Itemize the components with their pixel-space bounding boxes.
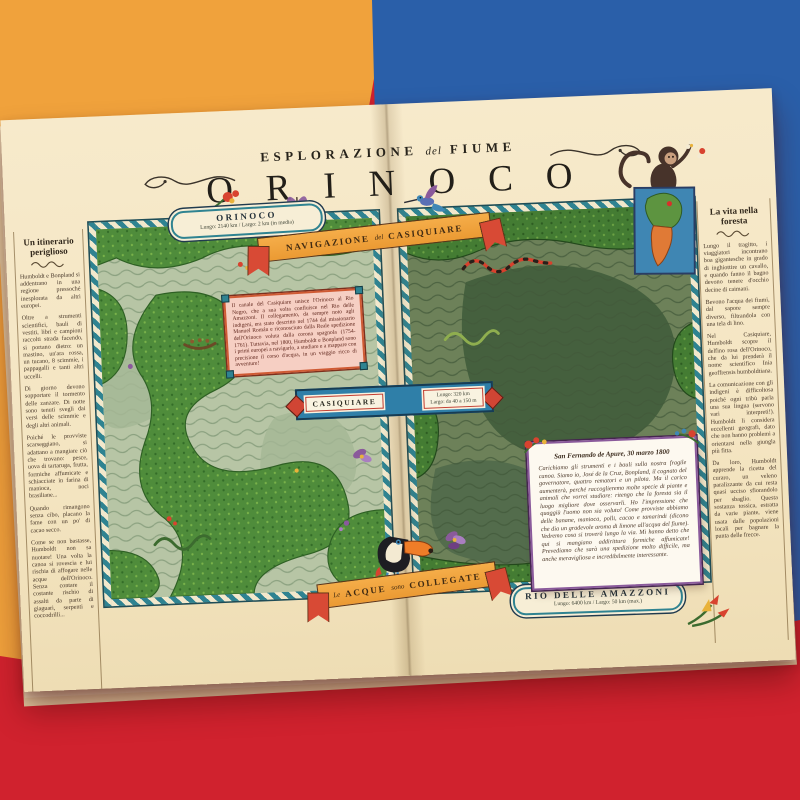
casiquiare-note-box: Il canale del Casiquiare unisce l'Orinoc…	[223, 288, 366, 376]
ribbon-word: CASIQUIARE	[388, 222, 464, 240]
ribbon-word-sono: sono	[391, 582, 405, 592]
ribbon-word-le: Le	[333, 590, 341, 599]
right-column-title: La vita nella foresta	[702, 204, 767, 227]
divider-squiggle-icon	[715, 228, 755, 239]
casiquiare-stat-width: Largo: da 40 a 150 m	[430, 397, 476, 406]
heliconia-flowers-icon	[680, 582, 734, 628]
left-paragraph: Di giorno devono sopportare il tormento …	[25, 384, 87, 430]
right-paragraph: La comunicazione con gli indigeni è diff…	[709, 380, 776, 456]
right-paragraph: Nel Casiquiare, Humboldt scopre il delfi…	[707, 331, 773, 378]
orinoco-location-dot	[667, 201, 672, 206]
right-paragraph: Da loro, Humboldt apprende la ricetta de…	[712, 458, 779, 541]
casiquiare-name: CASIQUIARE	[312, 397, 376, 409]
map-spread: ESPLORAZIONEdelFIUME ORINOCO Un itinerar…	[0, 88, 795, 692]
left-paragraph: Come se non bastasse, Humboldt non sa nu…	[31, 538, 94, 621]
left-paragraph: Oltre a strumenti scientifici, bauli di …	[22, 313, 85, 381]
casiquiare-note-text: Il canale del Casiquiare unisce l'Orinoc…	[232, 296, 358, 369]
ribbon-word: NAVIGAZIONE	[285, 233, 370, 252]
letter-body: Carichiamo gli strumenti e i bauli sulla…	[538, 459, 690, 563]
casiquiare-name-cell: CASIQUIARE	[305, 394, 383, 412]
flower-in-hand-icon	[685, 140, 697, 149]
expedition-letter: San Fernando de Apure, 30 marzo 1800 Car…	[526, 436, 702, 591]
kicker-word-fiume: FIUME	[450, 139, 516, 157]
letter-flowers-left-icon	[518, 431, 559, 459]
letter-flowers-right-icon	[662, 423, 705, 449]
note-corner	[221, 294, 229, 302]
ribbon-word-collegate: COLLEGATE	[409, 571, 482, 590]
south-america-inset-map	[633, 186, 696, 274]
ribbon-word-acque: ACQUE	[344, 583, 386, 598]
note-corner	[355, 286, 363, 294]
left-column-title: Un itinerario periglioso	[18, 235, 79, 258]
left-paragraph: Quando rimangono senza cibo, placano la …	[30, 504, 91, 536]
note-corner	[226, 370, 234, 378]
kicker-word-del: del	[425, 145, 442, 158]
photo-of-map-spread: ESPLORAZIONEdelFIUME ORINOCO Un itinerar…	[0, 0, 800, 800]
left-paragraph: Humboldt e Bonpland si addentrano in una…	[20, 272, 81, 311]
hummingbird-icon	[401, 184, 446, 216]
fold-orchid-icon	[346, 443, 377, 470]
right-column: La vita nella foresta Lungo il tragitto,…	[696, 198, 788, 643]
flower-sprig-icon	[697, 148, 706, 159]
right-paragraph: Lungo il tragitto, i viaggiatori incontr…	[703, 241, 769, 295]
left-paragraph: Poiché le provviste scarseggiano, si ada…	[27, 433, 90, 501]
note-corner	[359, 362, 367, 370]
casiquiare-stats-cell: Lungo: 320 km Largo: da 40 a 150 m	[423, 387, 484, 409]
left-column: Un itinerario periglioso Humboldt e Bonp…	[13, 229, 102, 692]
ribbon-word-del: del	[374, 232, 383, 241]
right-paragraph: Bevono l'acqua dei fiumi, dal sapore sem…	[705, 297, 770, 329]
divider-squiggle-icon	[29, 258, 69, 269]
